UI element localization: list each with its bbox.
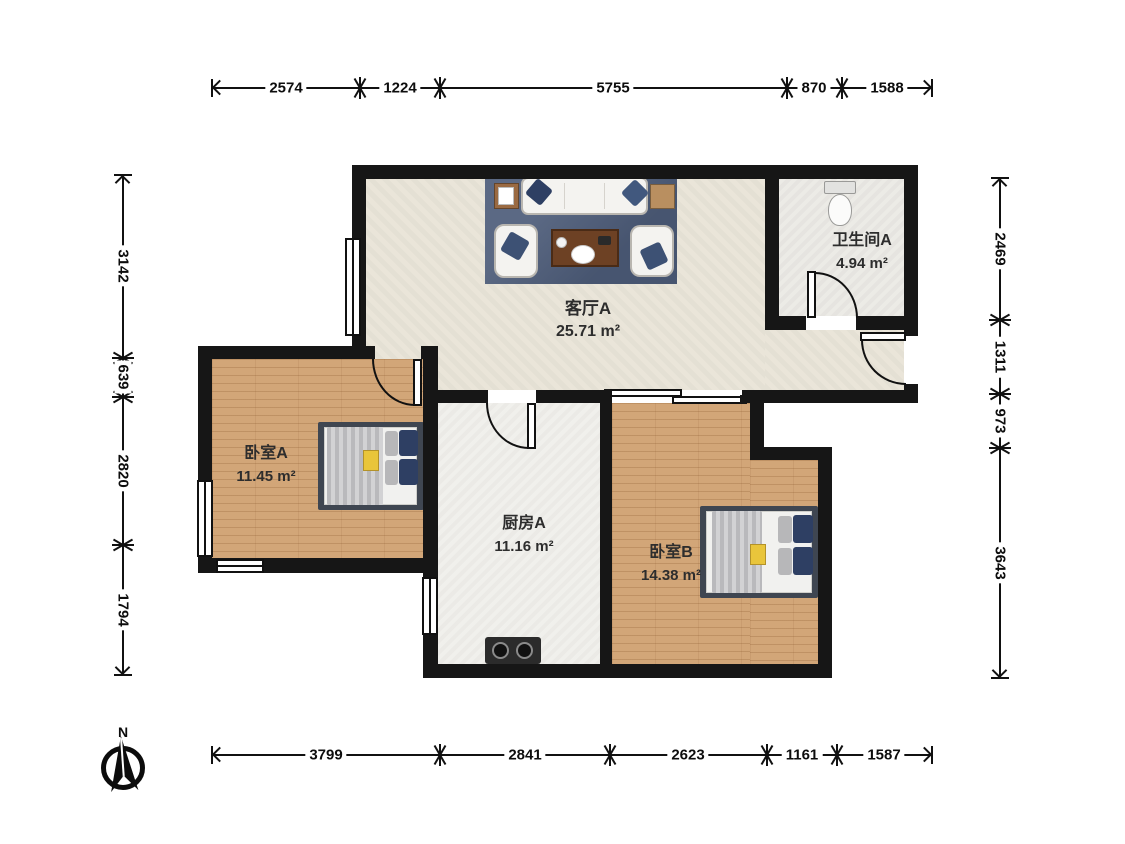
- dim-right-1: 2469: [992, 228, 1009, 269]
- bedroom-b-area: 14.38 m²: [641, 564, 701, 587]
- dim-right-4: 3643: [992, 542, 1009, 583]
- dim-top-2: 1224: [379, 80, 420, 97]
- bedroom-a-label: 卧室A 11.45 m²: [236, 442, 295, 488]
- stove-burner-left: [492, 642, 509, 659]
- bedroom-b-label: 卧室B 14.38 m²: [641, 541, 701, 587]
- floor-plan-canvas: 客厅A 25.71 m² 卫生间A 4.94 m² 卧室A 11.45 m² 厨…: [0, 0, 1125, 844]
- wall-kitchen-bedroom-b-divider: [600, 390, 612, 664]
- wall-bathroom-bottom-1: [765, 316, 806, 330]
- wall-bathroom-bottom-2: [856, 316, 918, 330]
- dim-bottom-1: 3799: [305, 747, 346, 764]
- wall-living-bottom-2: [536, 390, 608, 403]
- bedroom-a-area: 11.45 m²: [236, 465, 295, 488]
- plate-on-table: [571, 245, 595, 264]
- kitchen-label: 厨房A 11.16 m²: [494, 512, 553, 558]
- bedroom-a-navy-pillow-1: [399, 430, 418, 456]
- wall-bottom: [423, 664, 832, 678]
- bedroom-a-door-leaf: [413, 359, 422, 406]
- dim-left-1: 3142: [115, 245, 132, 286]
- bedroom-a-navy-pillow-2: [399, 459, 418, 485]
- bedroom-a-throw: [363, 450, 379, 471]
- living-room-area: 25.71 m²: [556, 320, 620, 343]
- dim-top-1: 2574: [265, 80, 306, 97]
- bathroom-label: 卫生间A 4.94 m²: [832, 229, 892, 275]
- window-bedroom-a-left: [197, 480, 213, 557]
- bedroom-a-gray-pillow-1: [385, 431, 398, 456]
- kitchen-area: 11.16 m²: [494, 535, 553, 558]
- dim-top-4: 870: [797, 80, 830, 97]
- kitchen-door-leaf: [527, 403, 536, 449]
- dish-on-table: [556, 237, 567, 248]
- compass-north-label: N: [118, 724, 128, 740]
- bedroom-b-gray-pillow-2: [778, 548, 792, 575]
- dim-top-3: 5755: [592, 80, 633, 97]
- bedroom-a-name: 卧室A: [236, 442, 295, 465]
- toilet-bowl: [828, 194, 852, 226]
- bathroom-area: 4.94 m²: [832, 252, 892, 275]
- living-room-label: 客厅A 25.71 m²: [556, 297, 620, 343]
- wall-bedroom-a-top-1: [198, 346, 375, 359]
- living-room-name: 客厅A: [556, 297, 620, 320]
- dim-top-5: 1588: [866, 80, 907, 97]
- bathroom-door-leaf: [807, 271, 816, 318]
- kitchen-name: 厨房A: [494, 512, 553, 535]
- wall-right-lower: [904, 384, 918, 403]
- toilet-tank: [824, 181, 856, 194]
- dim-bottom-3: 2623: [667, 747, 708, 764]
- bedroom-b-navy-pillow-2: [793, 547, 813, 575]
- wall-living-bottom-1: [423, 390, 488, 403]
- dim-bottom-2: 2841: [504, 747, 545, 764]
- bedroom-b-sliding-door-panel-2: [672, 396, 742, 404]
- paper-on-side-table: [498, 187, 514, 205]
- dimension-line-left: 3142 639 2820 1794: [122, 175, 124, 675]
- bedroom-b-name: 卧室B: [641, 541, 701, 564]
- dim-left-2: 639: [115, 360, 132, 393]
- dim-right-3: 973: [992, 404, 1009, 437]
- window-bedroom-a-bottom: [216, 559, 264, 573]
- bedroom-a-gray-pillow-2: [385, 460, 398, 485]
- remote-on-table: [598, 236, 611, 245]
- bedroom-b-throw: [750, 544, 766, 565]
- wall-bedroom-b-right: [818, 447, 832, 678]
- dimension-line-top: 2574 1224 5755 870 1588: [212, 87, 932, 89]
- dim-left-3: 2820: [115, 450, 132, 491]
- bathroom-name: 卫生间A: [832, 229, 892, 252]
- bedroom-b-gray-pillow-1: [778, 516, 792, 543]
- dim-bottom-5: 1587: [863, 747, 904, 764]
- window-living-left: [345, 238, 361, 336]
- window-kitchen-left: [422, 577, 438, 635]
- side-table-right: [650, 184, 675, 209]
- dimension-line-right: 2469 1311 973 3643: [999, 178, 1001, 678]
- dim-right-2: 1311: [992, 337, 1009, 378]
- dim-left-4: 1794: [115, 589, 132, 630]
- wall-top: [352, 165, 918, 179]
- wall-living-bottom-3: [742, 390, 918, 403]
- stove-burner-right: [516, 642, 533, 659]
- wall-right-upper: [904, 165, 918, 336]
- wall-bathroom-left: [765, 165, 779, 330]
- bedroom-b-navy-pillow-1: [793, 515, 813, 543]
- dimension-line-bottom: 3799 2841 2623 1161 1587: [212, 754, 932, 756]
- entry-door-leaf: [860, 332, 906, 341]
- sliding-door-cap-right: [740, 395, 747, 404]
- dim-bottom-4: 1161: [782, 747, 823, 764]
- compass: N: [94, 724, 152, 802]
